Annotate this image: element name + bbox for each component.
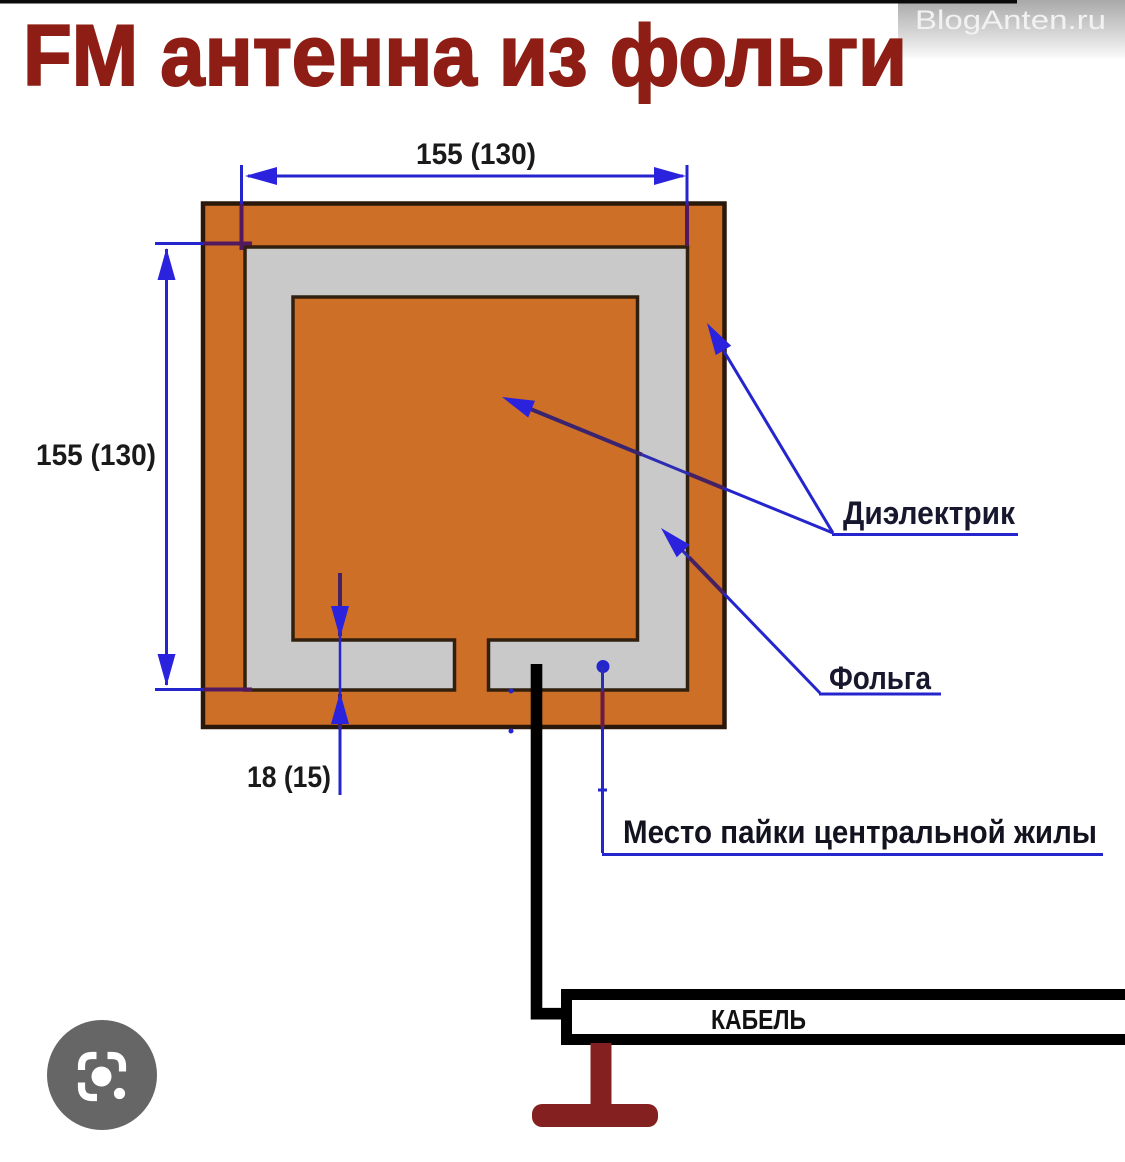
svg-text:Место пайки центральной жилы: Место пайки центральной жилы: [623, 814, 1097, 850]
svg-text:18 (15): 18 (15): [247, 761, 331, 794]
svg-text:155 (130): 155 (130): [416, 138, 536, 171]
svg-text:BlogAnten.ru: BlogAnten.ru: [915, 5, 1106, 35]
svg-text:КАБЕЛЬ: КАБЕЛЬ: [711, 1004, 806, 1035]
svg-text:155 (130): 155 (130): [36, 439, 156, 472]
svg-text:FM антенна из фольги: FM антенна из фольги: [23, 8, 907, 104]
svg-text:Диэлектрик: Диэлектрик: [843, 495, 1016, 531]
svg-text:Фольга: Фольга: [829, 660, 931, 696]
